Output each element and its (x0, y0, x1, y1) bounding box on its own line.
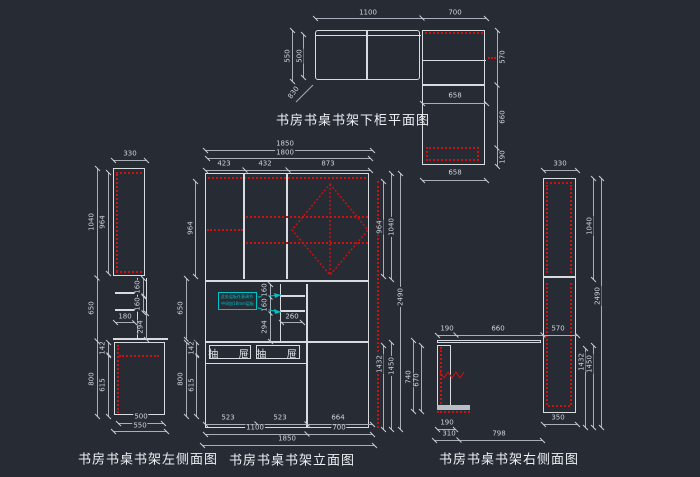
dim-label: 570 (550, 326, 565, 333)
dim-label: 423 (216, 161, 231, 168)
dim-line (543, 170, 578, 171)
dim-label: 1450 (389, 356, 396, 376)
red-dashed-line (116, 172, 142, 174)
annotation-note-line1: 此处层板任意调节 (221, 294, 254, 301)
cad-canvas[interactable]: 1100 700 550 500 830 658 658 570 660 190… (0, 0, 700, 477)
dim-line (434, 440, 543, 441)
bookshelf-divider (286, 173, 288, 279)
dim-label: 550 (132, 423, 147, 430)
dim-label: 350 (550, 415, 565, 422)
red-dashed-line (440, 347, 442, 404)
dim-label: 160 (135, 279, 142, 294)
dim-label: 1100 (358, 10, 378, 17)
dim-line (292, 30, 293, 82)
dim-label: 190 (439, 326, 454, 333)
dim-label: 615 (189, 377, 196, 392)
right-view-title: 书房书桌书架右侧面图 (439, 449, 579, 468)
dim-line (196, 355, 197, 417)
drawer-label: 抽 屉 (256, 346, 306, 361)
dim-line (115, 322, 135, 323)
dim-label: 310 (441, 431, 456, 438)
nook-shelf (281, 295, 305, 297)
dim-label: 294 (262, 319, 269, 334)
dim-label: 664 (330, 415, 345, 422)
plan-red-dashed-box (426, 147, 479, 161)
plan-cabinet-panel (422, 84, 485, 86)
right-desk-foot (437, 405, 470, 410)
dim-label: 2490 (595, 286, 602, 306)
dim-label: 500 (297, 48, 304, 63)
left-shelf (115, 292, 135, 294)
dim-line (422, 180, 487, 181)
right-desktop-panel (437, 340, 541, 343)
dim-line (543, 424, 578, 425)
dim-label: 740 (406, 369, 413, 384)
red-dashed-shelf (246, 242, 368, 244)
dim-label: 873 (320, 161, 335, 168)
dim-line (196, 342, 197, 355)
dim-label: 830 (287, 85, 302, 101)
left-desktop (113, 338, 168, 340)
drawer-bottom-edge (205, 363, 306, 364)
plan-desk-divider (366, 30, 368, 80)
dim-label: 964 (100, 214, 107, 229)
dim-line (108, 355, 109, 417)
dim-line (207, 158, 371, 159)
dim-label: 800 (178, 371, 185, 386)
dim-label: 700 (331, 425, 346, 432)
drawer-label: 抽 屉 (208, 346, 258, 361)
dim-label: 570 (500, 49, 507, 64)
desktop-panel (205, 341, 369, 343)
dim-label: 658 (447, 93, 462, 100)
red-dashed-shelf (246, 216, 368, 218)
dim-label: 432 (257, 161, 272, 168)
dim-line (113, 160, 147, 161)
dim-label: 660 (500, 109, 507, 124)
dim-label: 294 (138, 319, 145, 334)
dim-line (108, 172, 109, 274)
red-dashed-shelf (207, 229, 243, 231)
dim-label: 700 (447, 10, 462, 17)
right-column-panel (543, 276, 576, 278)
dim-label: 500 (133, 414, 148, 421)
dim-label: 1850 (277, 436, 297, 443)
plan-red-mark (488, 57, 496, 59)
bookshelf-bottom-panel (205, 280, 369, 282)
plan-cabinet-edge (423, 60, 486, 61)
dim-line (186, 278, 187, 340)
dim-label: 180 (117, 314, 132, 321)
dim-label: 650 (178, 300, 185, 315)
dim-line (113, 431, 167, 432)
plan-view-title: 书房书桌书架下柜平面图 (276, 110, 430, 129)
dim-label: 670 (414, 372, 421, 387)
dim-label: 190 (500, 149, 507, 164)
plan-red-dashed-top (425, 32, 483, 34)
dim-line (422, 103, 487, 104)
dim-label: 660 (490, 326, 505, 333)
red-dashed-line (546, 283, 548, 405)
dim-label: 160 (262, 297, 269, 312)
red-dashed-line (570, 185, 572, 273)
dim-line (281, 322, 303, 323)
dim-line (205, 424, 373, 425)
dim-label: 142 (189, 340, 196, 355)
dim-label: 160 (262, 282, 269, 297)
left-shelf (115, 309, 135, 311)
red-dashed-line (437, 411, 470, 413)
annotation-note-line2: 中间加18mm层板 (221, 301, 254, 308)
dim-label: 964 (188, 220, 195, 235)
dim-label: 1100 (245, 425, 265, 432)
red-dashed-line (546, 182, 572, 184)
annotation-note: 此处层板任意调节 中间加18mm层板 (218, 292, 257, 310)
dim-label: 658 (447, 170, 462, 177)
elevation-view-title: 书房书桌书架立面图 (229, 450, 355, 469)
dim-label: 1432 (377, 354, 384, 374)
dim-line (143, 278, 144, 296)
left-desk-cabinet-outline (114, 342, 165, 415)
dim-label: 142 (100, 340, 107, 355)
red-dashed-line (119, 355, 159, 357)
dim-line (108, 342, 109, 355)
dim-label: 650 (89, 300, 96, 315)
dim-label: 1432 (579, 352, 586, 372)
dim-label: 1850 (275, 141, 295, 148)
dim-label: 615 (100, 377, 107, 392)
left-view-title: 书房书桌书架左侧面图 (78, 449, 218, 468)
dim-label: 1040 (389, 217, 396, 237)
dim-label: 190 (439, 420, 454, 427)
dim-line (195, 181, 196, 277)
dim-label: 1040 (587, 216, 594, 236)
dim-label: 523 (220, 415, 235, 422)
dim-label: 330 (552, 161, 567, 168)
dim-line (421, 345, 422, 412)
dim-label: 798 (491, 431, 506, 438)
bookshelf-divider (243, 173, 245, 279)
dim-line (202, 445, 375, 446)
dim-line (146, 313, 147, 340)
dim-label: 550 (285, 48, 292, 63)
desk-divider (306, 284, 308, 428)
red-dashed-line (116, 174, 118, 272)
dim-label: 1040 (89, 212, 96, 232)
red-dashed-line (116, 271, 142, 273)
red-dashed-line (548, 405, 570, 407)
dim-label: 523 (272, 415, 287, 422)
dim-label: 964 (377, 219, 384, 234)
dim-label: 1450 (587, 354, 594, 374)
dim-line (315, 18, 487, 19)
red-dashed-line (377, 181, 379, 428)
dim-label: 800 (89, 371, 96, 386)
dim-label: 330 (122, 151, 137, 158)
red-dashed-line (570, 283, 572, 405)
dim-label: 2490 (398, 287, 405, 307)
dim-label: 260 (284, 314, 299, 321)
nook-edge (280, 284, 281, 341)
red-dashed-line (546, 185, 548, 273)
plan-desk-inner-edge (316, 35, 421, 36)
dim-label: 1800 (275, 150, 295, 157)
dim-label: 160 (135, 296, 142, 311)
